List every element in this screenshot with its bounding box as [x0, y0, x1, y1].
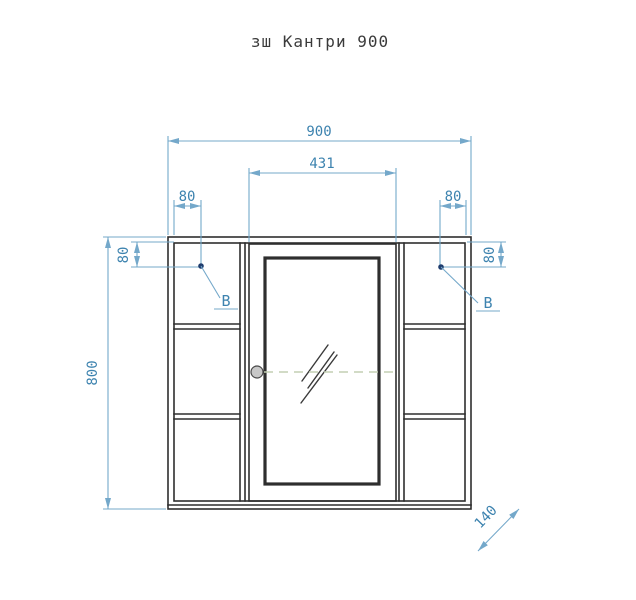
dim-side-offset-left: 80: [116, 247, 132, 264]
dim-depth: 140: [472, 503, 501, 532]
right-shelves: [404, 324, 465, 419]
page-title: зш Кантри 900: [251, 32, 389, 51]
mirror-glass-hatch: [301, 345, 337, 403]
door-mirror-frame: [265, 258, 379, 484]
right-divider: [399, 243, 404, 501]
marker-b-left: B: [198, 263, 238, 310]
left-shelves: [174, 324, 240, 419]
dimension-values: 900 431 80 80 80 80 800 140: [85, 124, 501, 532]
left-divider: [240, 243, 245, 501]
marker-label-right: B: [483, 294, 492, 312]
marker-label-left: B: [221, 292, 230, 310]
dim-door-width: 431: [309, 156, 334, 172]
leader-markers: B B: [198, 263, 500, 312]
cabinet-drawing: зш Кантри 900: [0, 0, 636, 600]
technical-drawing-page: зш Кантри 900: [0, 0, 636, 600]
dim-overall-height: 800: [85, 360, 101, 385]
dim-side-offset-right: 80: [482, 247, 498, 264]
dim-top-offset-right: 80: [445, 189, 462, 205]
dim-top-offset-left: 80: [179, 189, 196, 205]
mirror-door: [249, 244, 396, 501]
marker-b-right: B: [438, 264, 500, 312]
dim-overall-width: 900: [306, 124, 331, 140]
door-handle-knob: [251, 366, 263, 378]
